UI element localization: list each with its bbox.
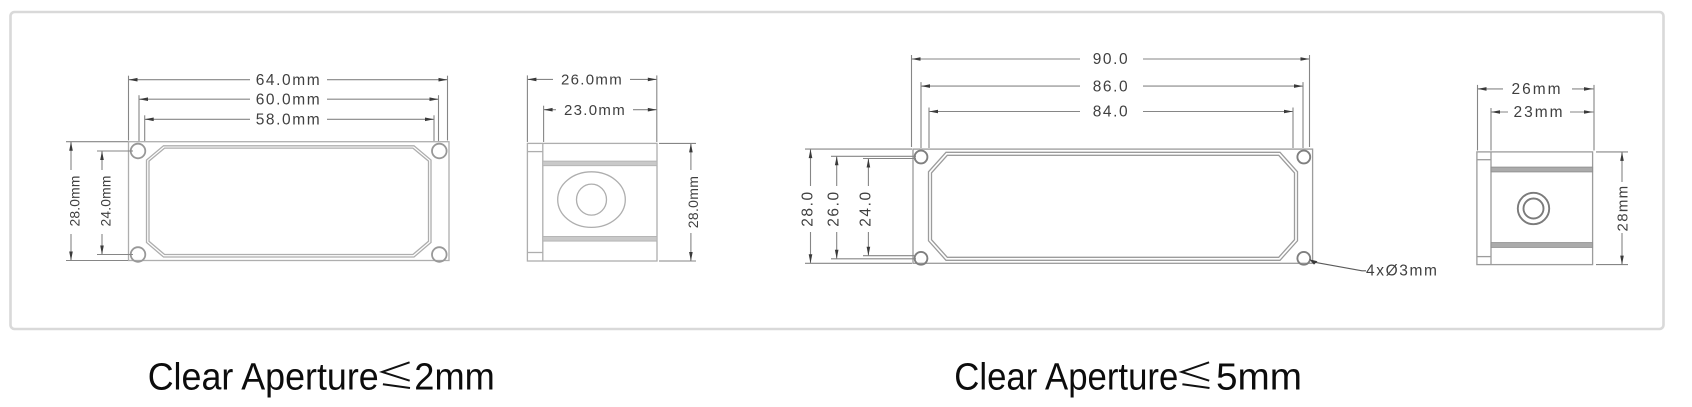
svg-text:26.0mm: 26.0mm: [561, 72, 623, 89]
svg-text:28.0: 28.0: [800, 190, 817, 227]
svg-text:58.0mm: 58.0mm: [256, 112, 322, 129]
svg-text:23.0mm: 23.0mm: [564, 102, 626, 119]
svg-text:5mm: 5mm: [1216, 357, 1302, 399]
svg-text:26.0: 26.0: [826, 190, 843, 227]
svg-text:86.0: 86.0: [1093, 78, 1130, 95]
svg-text:24.0: 24.0: [857, 190, 874, 227]
svg-text:90.0: 90.0: [1093, 51, 1130, 68]
svg-text:64.0mm: 64.0mm: [256, 72, 322, 89]
svg-text:26mm: 26mm: [1511, 81, 1562, 98]
svg-text:28.0mm: 28.0mm: [685, 176, 701, 228]
svg-text:4xØ3mm: 4xØ3mm: [1366, 262, 1438, 279]
svg-text:Clear Aperture: Clear Aperture: [954, 357, 1178, 399]
svg-text:60.0mm: 60.0mm: [256, 91, 322, 108]
svg-text:24.0mm: 24.0mm: [99, 175, 114, 226]
svg-text:23mm: 23mm: [1513, 104, 1564, 121]
svg-text:28mm: 28mm: [1615, 185, 1632, 232]
svg-text:84.0: 84.0: [1093, 104, 1130, 121]
svg-text:Clear Aperture: Clear Aperture: [148, 357, 379, 399]
svg-text:28.0mm: 28.0mm: [68, 175, 83, 226]
svg-text:2mm: 2mm: [414, 357, 495, 399]
